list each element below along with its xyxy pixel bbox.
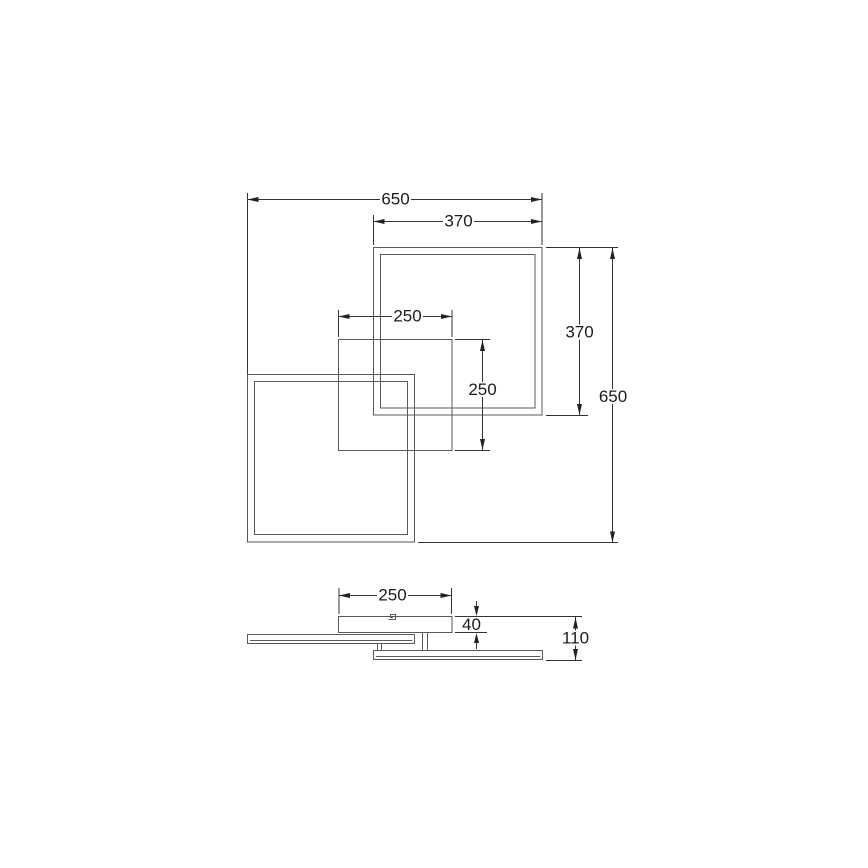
arrowhead-right	[441, 314, 452, 319]
arrowhead-up	[610, 248, 615, 259]
dim-upper-frame-width: 370	[374, 212, 543, 246]
dim-label-side-canopy-width: 250	[378, 586, 406, 605]
lower-frame-profile	[374, 651, 543, 660]
frame-connectors	[378, 633, 428, 651]
dim-overall-height: 650	[418, 248, 630, 543]
dim-overall-width: 650	[248, 190, 543, 375]
plan-view: 650 370 250	[248, 190, 631, 543]
dim-canopy-height: 250	[455, 340, 499, 451]
lower-frame-outer-outline	[248, 375, 415, 543]
upper-frame-inner-outline	[381, 255, 536, 409]
arrowhead-left	[339, 593, 350, 598]
dim-side-overall-height: 110	[546, 617, 592, 661]
dim-canopy-width: 250	[339, 307, 453, 338]
arrowhead-down	[577, 404, 582, 415]
lower-frame-inner-outline	[255, 382, 408, 535]
dim-label-upper-frame-width: 370	[444, 212, 472, 231]
arrowhead-left	[248, 197, 259, 202]
arrowhead-up	[480, 340, 485, 351]
canopy-outline	[339, 340, 453, 451]
upper-frame-profile	[248, 635, 415, 644]
arrowhead-down	[573, 649, 578, 660]
upper-frame-outer-outline	[374, 248, 543, 416]
dim-label-side-overall-height: 110	[562, 629, 589, 648]
side-view: 250 40 110	[248, 586, 593, 661]
dim-label-canopy-height: 250	[468, 380, 496, 399]
arrowhead-down	[610, 532, 615, 543]
dim-label-overall-width: 650	[381, 190, 409, 209]
arrowhead-up	[577, 248, 582, 259]
dim-label-canopy-width: 250	[393, 307, 421, 326]
dim-label-overall-height: 650	[599, 387, 627, 406]
arrowhead-down	[480, 439, 485, 450]
lower-frame-profile-outline	[374, 651, 543, 660]
arrowhead-left	[374, 219, 385, 224]
arrowhead-up	[474, 633, 479, 643]
drawing-page: 650 370 250	[0, 0, 868, 868]
lower-square-frame	[248, 375, 415, 543]
technical-drawing-canvas: 650 370 250	[0, 0, 868, 868]
arrowhead-right	[441, 593, 452, 598]
arrowhead-right	[531, 219, 542, 224]
arrowhead-right	[531, 197, 542, 202]
upper-frame-profile-outline	[248, 635, 415, 644]
arrowhead-left	[339, 314, 350, 319]
dim-label-upper-frame-height: 370	[565, 323, 593, 342]
arrowhead-up	[573, 618, 578, 629]
dim-side-canopy-width: 250	[339, 586, 452, 615]
upper-square-frame	[374, 248, 543, 416]
dim-label-canopy-box-height: 40	[462, 615, 481, 634]
